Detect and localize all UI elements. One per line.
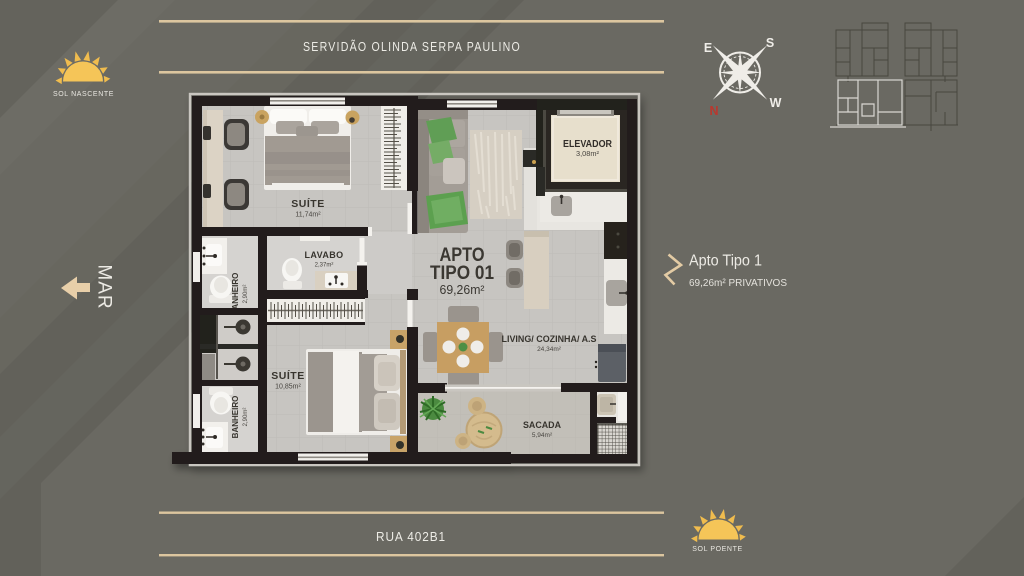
svg-text:SUÍTE: SUÍTE (271, 369, 304, 382)
svg-text:10,85m²: 10,85m² (275, 384, 301, 391)
svg-text:69,26m²: 69,26m² (440, 282, 486, 297)
svg-text:24,34m²: 24,34m² (537, 346, 562, 353)
svg-text:RUA 402B1: RUA 402B1 (376, 529, 446, 544)
svg-text:LAVABO: LAVABO (304, 250, 343, 260)
svg-text:W: W (770, 96, 782, 110)
svg-text:MAR: MAR (94, 264, 115, 309)
svg-text:5,94m²: 5,94m² (532, 432, 553, 439)
svg-text:SACADA: SACADA (523, 420, 561, 431)
svg-text:TIPO 01: TIPO 01 (430, 263, 494, 284)
svg-text:Apto Tipo 1: Apto Tipo 1 (689, 253, 762, 270)
svg-text:N: N (709, 104, 718, 118)
svg-text:SOL NASCENTE: SOL NASCENTE (53, 91, 114, 98)
svg-text:BANHEIRO: BANHEIRO (231, 396, 240, 439)
svg-text:2,90m²: 2,90m² (243, 285, 249, 304)
svg-text:E: E (704, 41, 712, 55)
svg-text:SERVIDÃO OLINDA SERPA PAULI: SERVIDÃO OLINDA SERPA PAULINO (303, 39, 521, 54)
svg-text:LIVING/ COZINHA/ A.S: LIVING/ COZINHA/ A.S (502, 334, 597, 345)
svg-text:SUÍTE: SUÍTE (291, 197, 324, 210)
svg-text:ELEVADOR: ELEVADOR (563, 138, 612, 150)
svg-text:3,08m²: 3,08m² (576, 151, 600, 158)
svg-text:69,26m² PRIVATIVOS: 69,26m² PRIVATIVOS (689, 277, 787, 289)
svg-text:S: S (766, 36, 774, 50)
svg-text:SOL POENTE: SOL POENTE (692, 546, 742, 553)
svg-text:2,37m²: 2,37m² (315, 263, 334, 269)
svg-text:11,74m²: 11,74m² (295, 212, 321, 219)
svg-text:2,90m²: 2,90m² (243, 408, 249, 427)
